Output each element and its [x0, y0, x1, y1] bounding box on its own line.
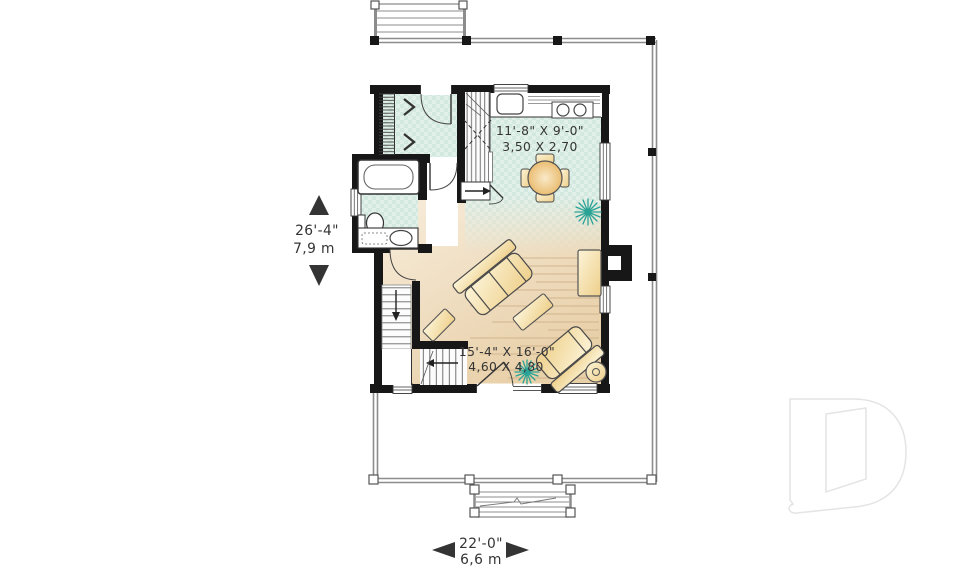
- depth-metric: 7,9 m: [293, 241, 335, 257]
- kitchen-dim-imperial: 11'-8" X 9'-0": [496, 124, 584, 138]
- kitchen-sink: [497, 94, 523, 114]
- plant-icon: [575, 199, 601, 225]
- floor-plan-svg: 11'-8" X 9'-0" 3,50 X 2,70 15'-4" X 16'-…: [0, 0, 960, 569]
- drummond-d-logo: [789, 399, 906, 513]
- back-deck-stairs: [371, 1, 467, 40]
- arrow-right-icon: [506, 542, 529, 558]
- depth-imperial: 26'-4": [295, 223, 339, 239]
- understair-storage: [382, 349, 411, 385]
- cooktop: [552, 102, 593, 118]
- wall-stairwell-vert: [412, 281, 420, 349]
- kitchen-counter: [490, 93, 602, 118]
- arrow-left-icon: [432, 542, 455, 558]
- sideboard: [578, 250, 601, 296]
- living-dim-metric: 4,60 X 4,80: [468, 360, 543, 374]
- bath-corridor-floor: [426, 160, 458, 246]
- floor-plan-canvas: 11'-8" X 9'-0" 3,50 X 2,70 15'-4" X 16'-…: [0, 0, 960, 569]
- arrow-up-icon: [309, 195, 329, 215]
- fireplace: [601, 245, 632, 281]
- front-steps: [470, 485, 575, 517]
- arrow-down-icon: [309, 265, 329, 286]
- ottoman: [586, 362, 606, 382]
- depth-dimension: 26'-4" 7,9 m: [293, 195, 339, 286]
- living-dim-imperial: 15'-4" X 16'-0": [459, 345, 555, 359]
- width-metric: 6,6 m: [460, 552, 502, 568]
- east-window-upper: [600, 143, 610, 200]
- wall-east: [601, 85, 609, 393]
- bathtub: [358, 160, 419, 194]
- bathroom-vanity: [358, 228, 418, 248]
- vanity-sink: [390, 231, 412, 246]
- upper-staircase: [461, 92, 493, 200]
- width-dimension: 22'-0" 6,6 m: [432, 536, 529, 568]
- wall-bath-bottom-b: [418, 244, 432, 253]
- width-imperial: 22'-0": [459, 536, 503, 552]
- kitchen-dim-metric: 3,50 X 2,70: [502, 140, 577, 154]
